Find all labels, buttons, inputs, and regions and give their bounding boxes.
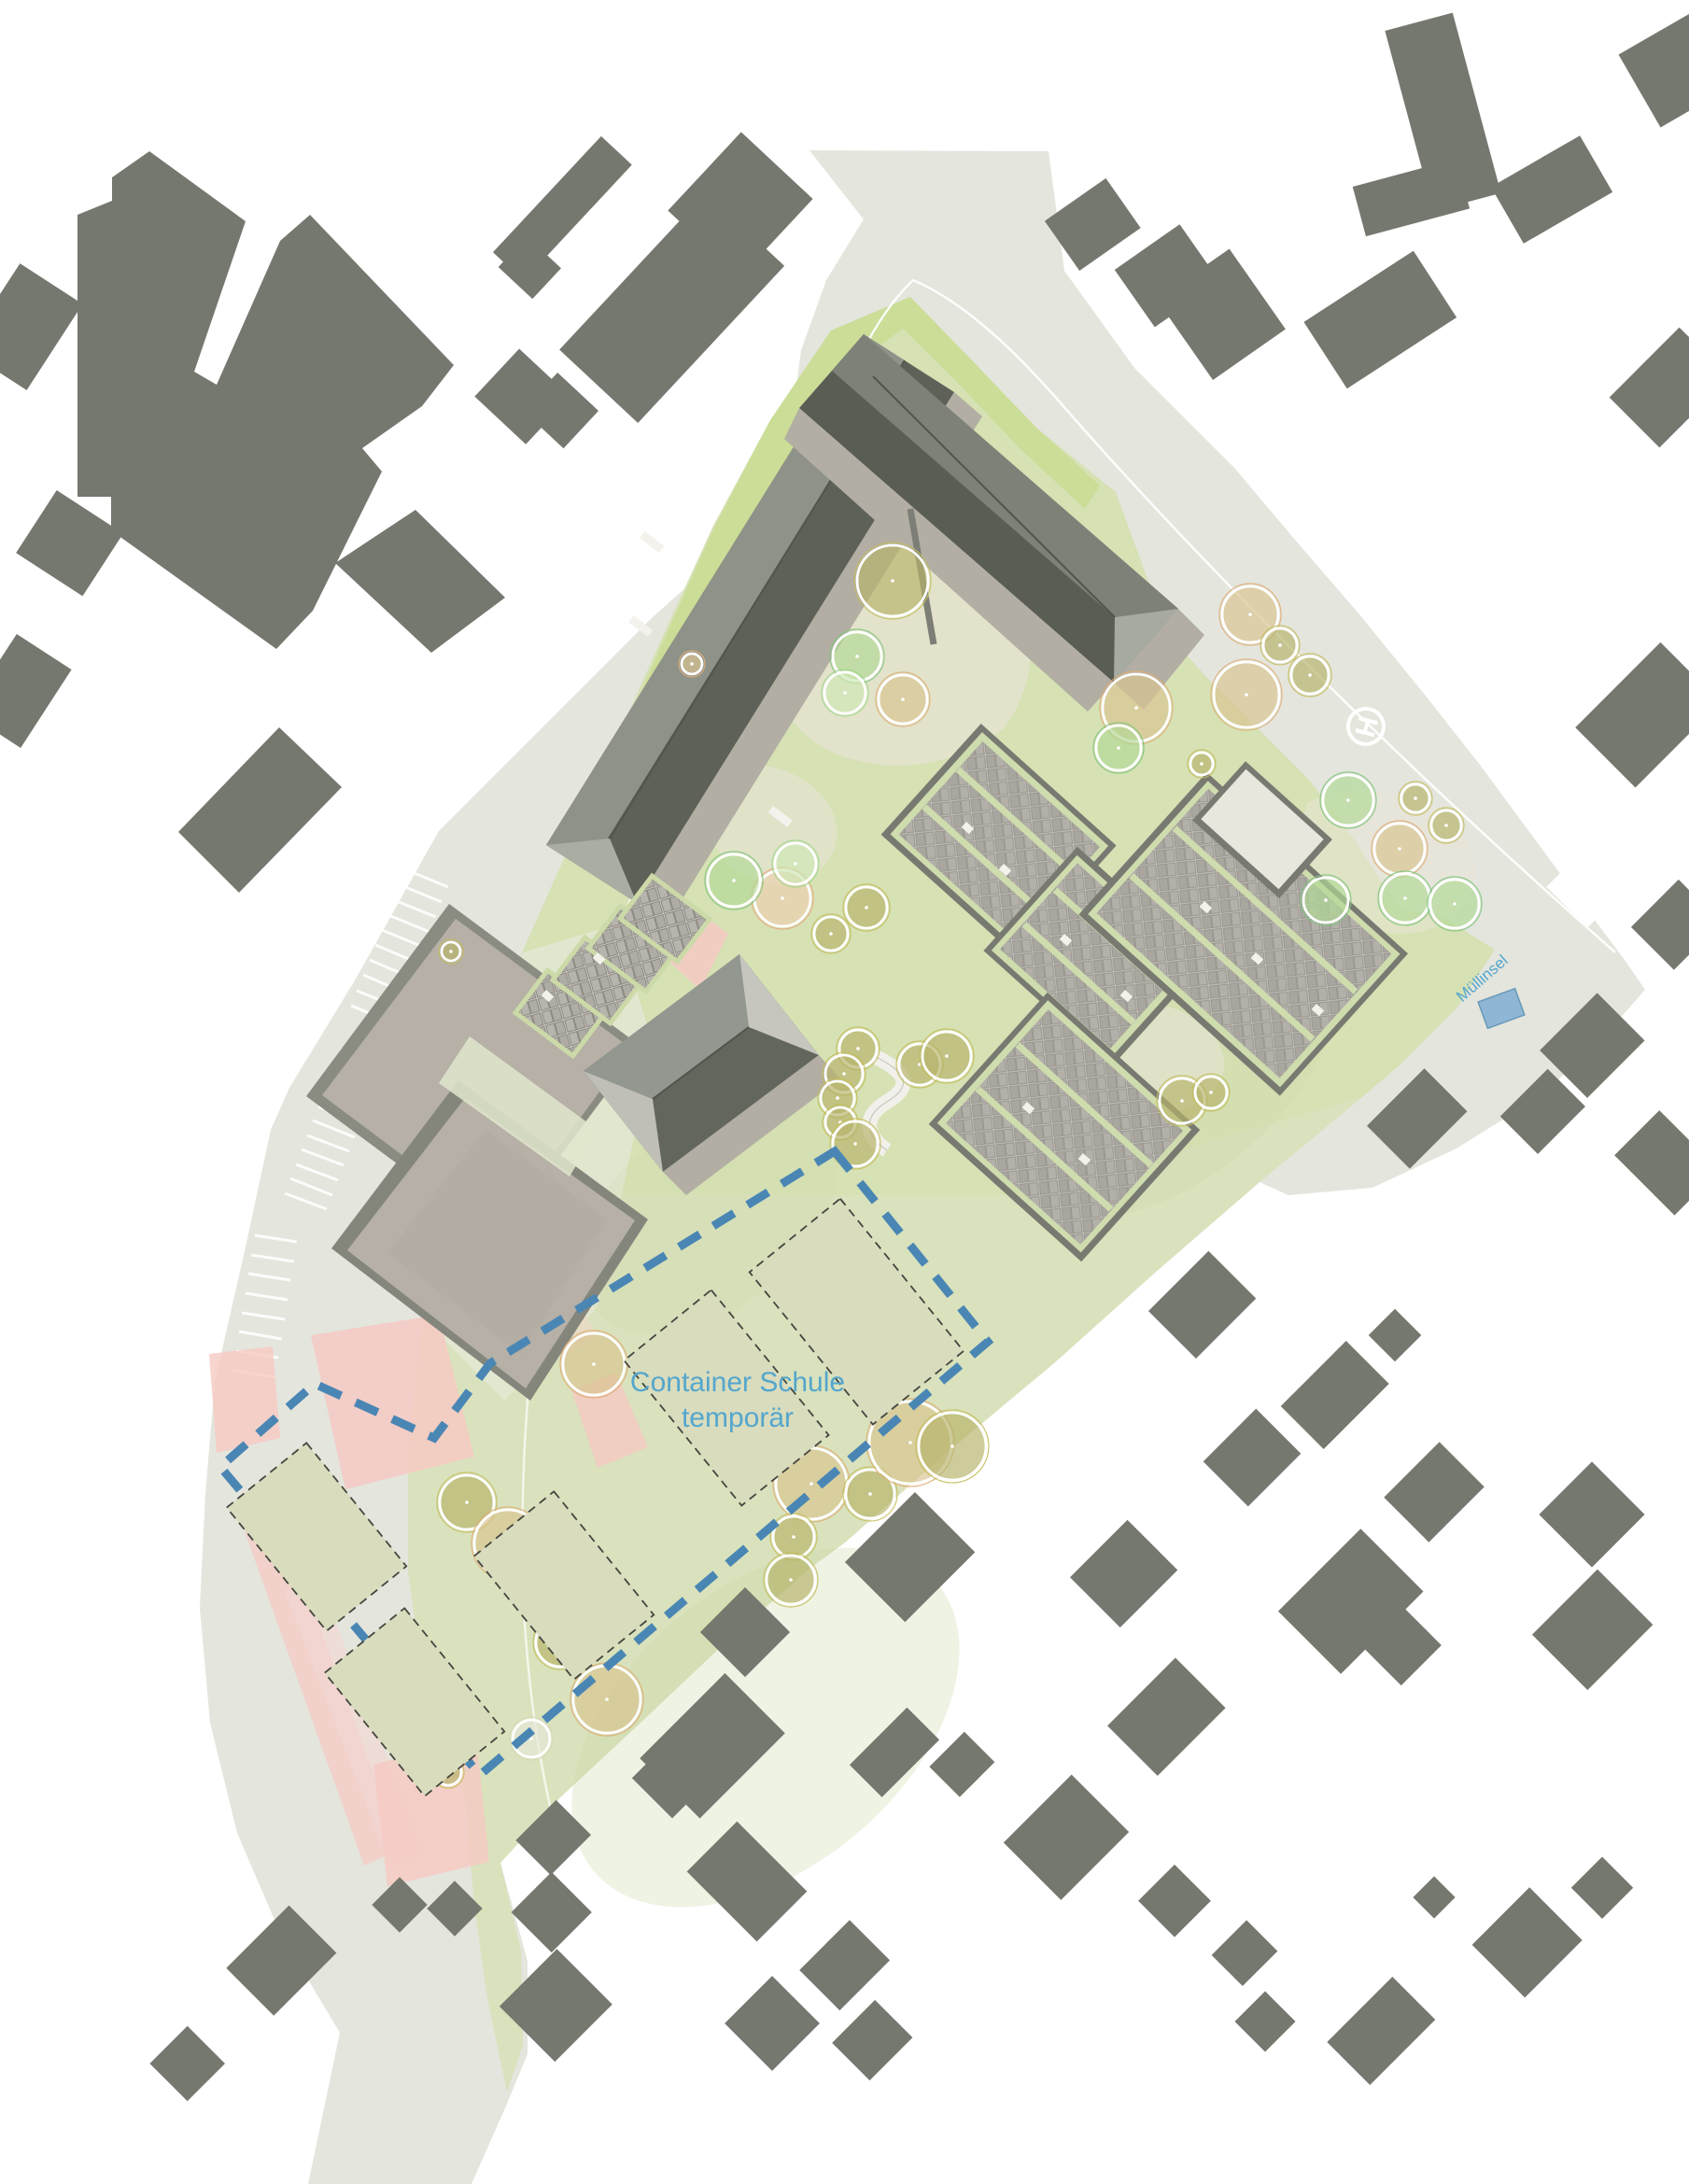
svg-text:Container Schule: Container Schule xyxy=(630,1367,845,1398)
svg-text:temporär: temporär xyxy=(682,1402,794,1433)
